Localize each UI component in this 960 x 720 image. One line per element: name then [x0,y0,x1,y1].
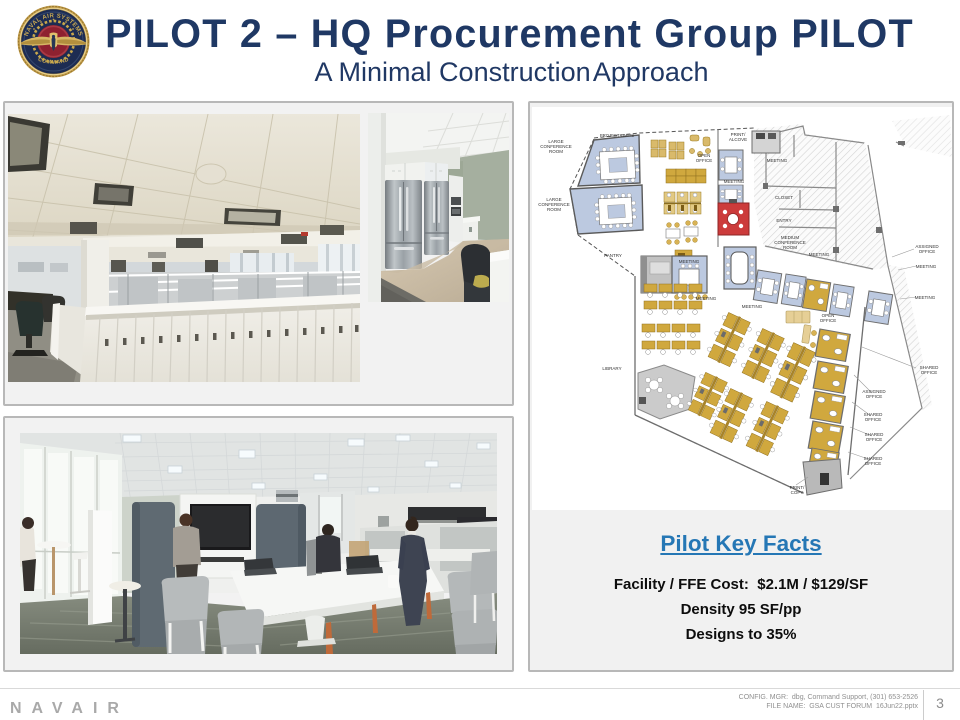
svg-text:OFFICE: OFFICE [865,417,882,422]
svg-text:COPY: COPY [791,490,804,495]
svg-text:OFFICE: OFFICE [865,461,882,466]
svg-text:OFFICE: OFFICE [866,437,883,442]
svg-text:MEETING: MEETING [679,259,700,264]
svg-text:ALCOVE: ALCOVE [729,137,747,142]
svg-text:OFFICE: OFFICE [696,158,713,163]
svg-text:ENTRY: ENTRY [776,218,791,223]
svg-text:MEETING: MEETING [915,295,936,300]
svg-text:MEETING: MEETING [724,179,745,184]
svg-text:LIBRARY: LIBRARY [602,366,621,371]
svg-text:OFFICE: OFFICE [866,394,883,399]
svg-text:PANTRY: PANTRY [604,253,622,258]
svg-text:OFFICE: OFFICE [919,249,936,254]
svg-text:MEETING: MEETING [742,304,763,309]
svg-text:PROJECT LIMITS: PROJECT LIMITS [600,133,634,138]
svg-text:ROOM: ROOM [549,149,563,154]
svg-text:MEETING: MEETING [696,296,717,301]
svg-text:CLOSET: CLOSET [775,195,793,200]
svg-text:OFFICE: OFFICE [921,370,938,375]
svg-text:MEETING: MEETING [916,264,937,269]
svg-text:MEETING: MEETING [809,252,830,257]
svg-text:OFFICE: OFFICE [820,318,837,323]
svg-text:MEETING: MEETING [767,158,788,163]
svg-text:ROOM: ROOM [547,207,561,212]
svg-text:ROOM: ROOM [783,245,797,250]
